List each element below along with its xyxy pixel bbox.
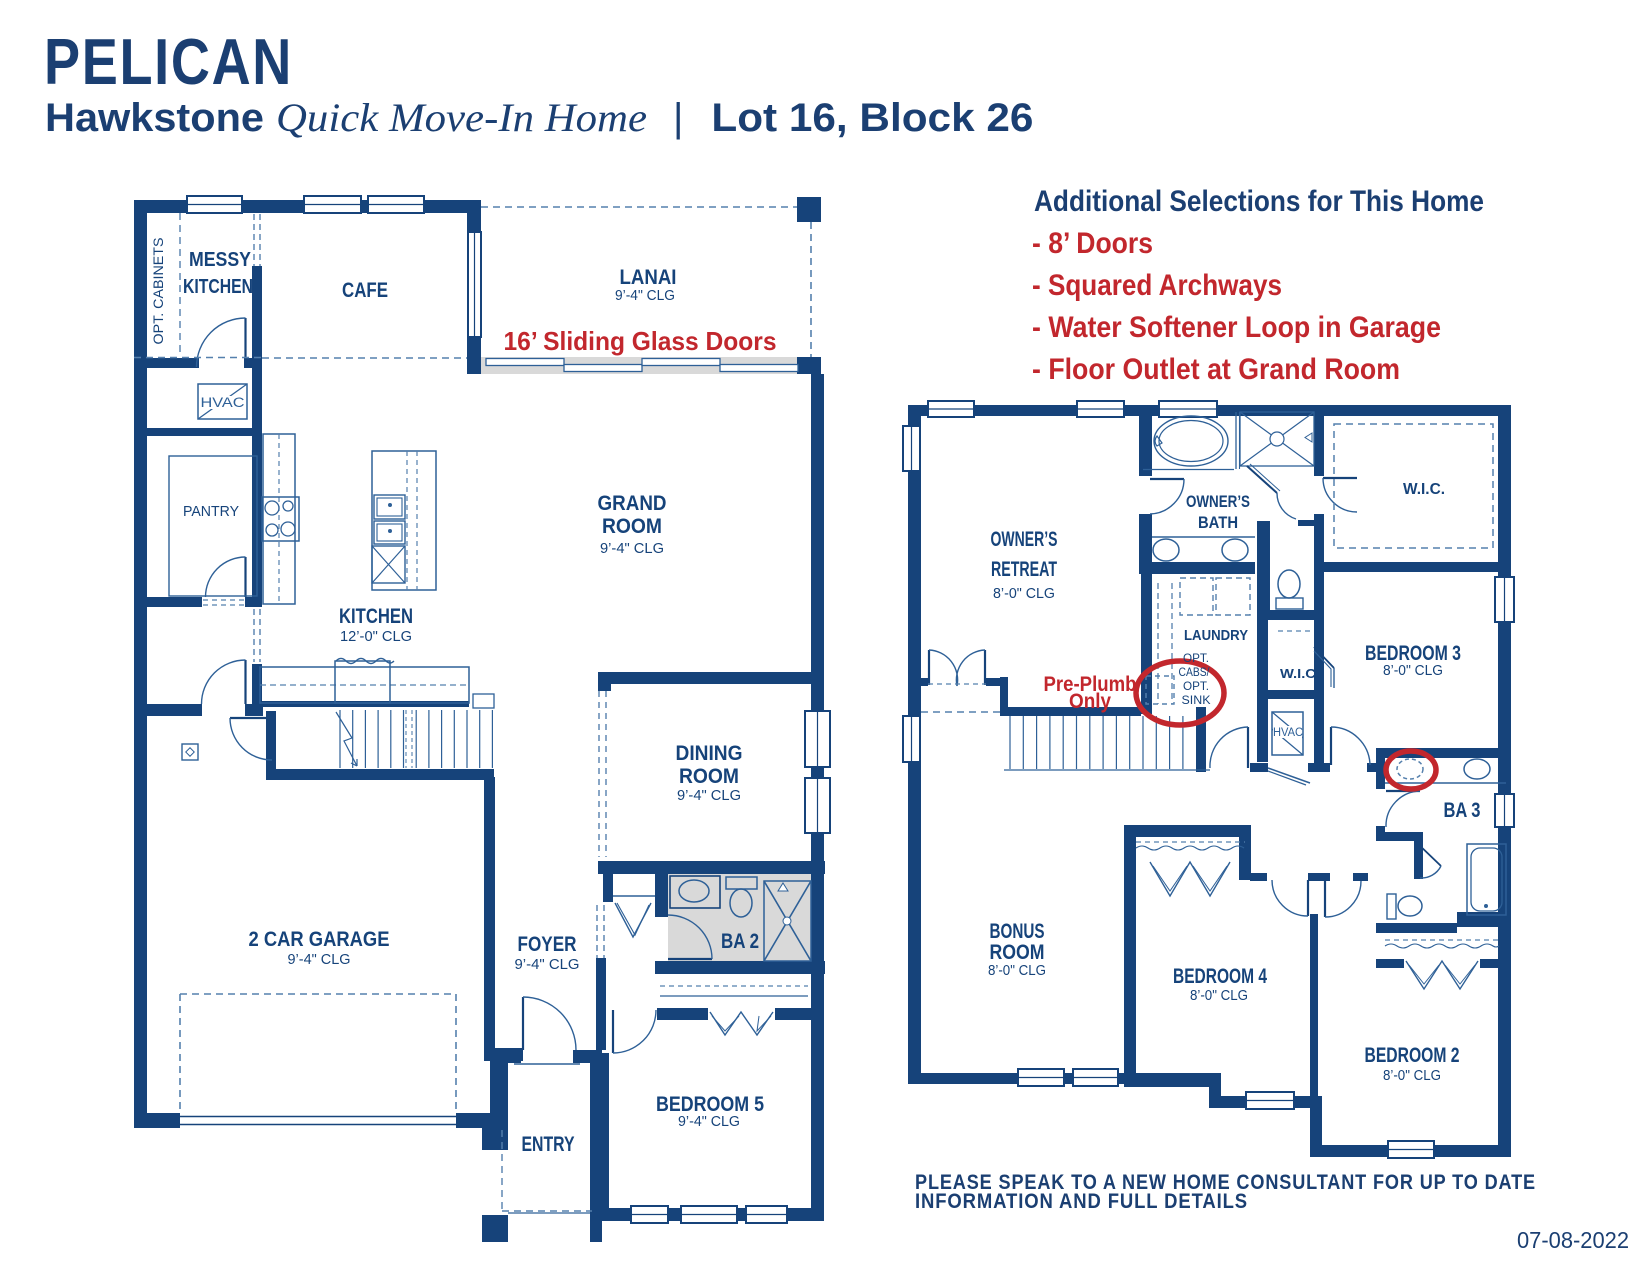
svg-text:PELICAN: PELICAN: [44, 25, 293, 98]
svg-text:BEDROOM 5: BEDROOM 5: [656, 1093, 764, 1116]
svg-text:8’-0" CLG: 8’-0" CLG: [993, 586, 1055, 602]
svg-text:OPT. CABINETS: OPT. CABINETS: [151, 238, 166, 345]
svg-text:OPT.: OPT.: [1183, 681, 1209, 693]
svg-text:8’-0" CLG: 8’-0" CLG: [988, 963, 1046, 979]
svg-text:BA 3: BA 3: [1444, 799, 1481, 822]
svg-text:BATH: BATH: [1198, 513, 1238, 532]
svg-text:RETREAT: RETREAT: [991, 558, 1057, 581]
svg-text:16’ Sliding Glass Doors: 16’ Sliding Glass Doors: [504, 326, 777, 356]
svg-text:W.I.C.: W.I.C.: [1280, 666, 1320, 681]
svg-text:9’-4" CLG: 9’-4" CLG: [677, 788, 741, 804]
svg-text:Only: Only: [1069, 690, 1111, 713]
svg-text:ENTRY: ENTRY: [522, 1133, 575, 1156]
svg-text:9’-4" CLG: 9’-4" CLG: [600, 541, 664, 557]
svg-text:ROOM: ROOM: [602, 515, 662, 538]
svg-text:SINK: SINK: [1182, 695, 1211, 707]
svg-text:BEDROOM 4: BEDROOM 4: [1173, 965, 1267, 988]
svg-text:12’-0" CLG: 12’-0" CLG: [340, 629, 412, 645]
svg-text:BA 2: BA 2: [721, 930, 759, 953]
svg-text:HVAC: HVAC: [201, 395, 245, 410]
svg-text:KITCHEN: KITCHEN: [339, 605, 413, 628]
svg-text:HawkstoneQuick Move-In Home|Lo: HawkstoneQuick Move-In Home|Lot 16, Bloc…: [45, 95, 1033, 140]
svg-text:2 CAR GARAGE: 2 CAR GARAGE: [249, 928, 390, 951]
svg-text:- Floor Outlet at Grand Room: - Floor Outlet at Grand Room: [1032, 353, 1400, 386]
svg-text:OPT.: OPT.: [1183, 653, 1209, 665]
svg-text:OWNER’S: OWNER’S: [991, 528, 1058, 551]
svg-text:Additional Selections for This: Additional Selections for This Home: [1034, 185, 1484, 218]
svg-text:OWNER’S: OWNER’S: [1186, 492, 1250, 511]
svg-text:MESSY: MESSY: [189, 249, 252, 271]
svg-text:9’-4" CLG: 9’-4" CLG: [615, 288, 675, 304]
svg-text:FOYER: FOYER: [518, 933, 577, 956]
svg-text:8’-0" CLG: 8’-0" CLG: [1383, 1068, 1441, 1084]
svg-text:8’-0" CLG: 8’-0" CLG: [1383, 663, 1443, 679]
svg-text:- 8’ Doors: - 8’ Doors: [1032, 227, 1153, 260]
svg-text:INFORMATION AND FULL DETAILS: INFORMATION AND FULL DETAILS: [915, 1190, 1248, 1213]
svg-text:9’-4" CLG: 9’-4" CLG: [678, 1114, 740, 1130]
svg-text:W.I.C.: W.I.C.: [1403, 481, 1445, 498]
svg-text:9’-4" CLG: 9’-4" CLG: [288, 952, 351, 968]
svg-text:KITCHEN: KITCHEN: [183, 276, 253, 298]
svg-text:LAUNDRY: LAUNDRY: [1184, 627, 1248, 644]
svg-text:07-08-2022: 07-08-2022: [1517, 1227, 1629, 1253]
svg-text:- Water Softener Loop in Garag: - Water Softener Loop in Garage: [1032, 311, 1441, 344]
svg-text:GRAND: GRAND: [598, 492, 667, 515]
svg-text:CAFE: CAFE: [342, 279, 388, 302]
svg-text:BEDROOM 2: BEDROOM 2: [1365, 1044, 1460, 1067]
svg-text:CABS/: CABS/: [1179, 667, 1211, 679]
svg-text:8’-0" CLG: 8’-0" CLG: [1190, 988, 1248, 1004]
svg-text:DINING: DINING: [676, 742, 743, 765]
svg-text:ROOM: ROOM: [990, 941, 1045, 964]
svg-text:PANTRY: PANTRY: [183, 504, 239, 520]
svg-text:- Squared Archways: - Squared Archways: [1032, 269, 1282, 302]
svg-text:HVAC: HVAC: [1273, 727, 1303, 739]
svg-text:BEDROOM 3: BEDROOM 3: [1365, 642, 1461, 665]
svg-text:BONUS: BONUS: [990, 920, 1045, 943]
svg-text:9’-4" CLG: 9’-4" CLG: [515, 957, 580, 973]
svg-text:LANAI: LANAI: [620, 266, 677, 289]
svg-text:ROOM: ROOM: [679, 765, 739, 788]
